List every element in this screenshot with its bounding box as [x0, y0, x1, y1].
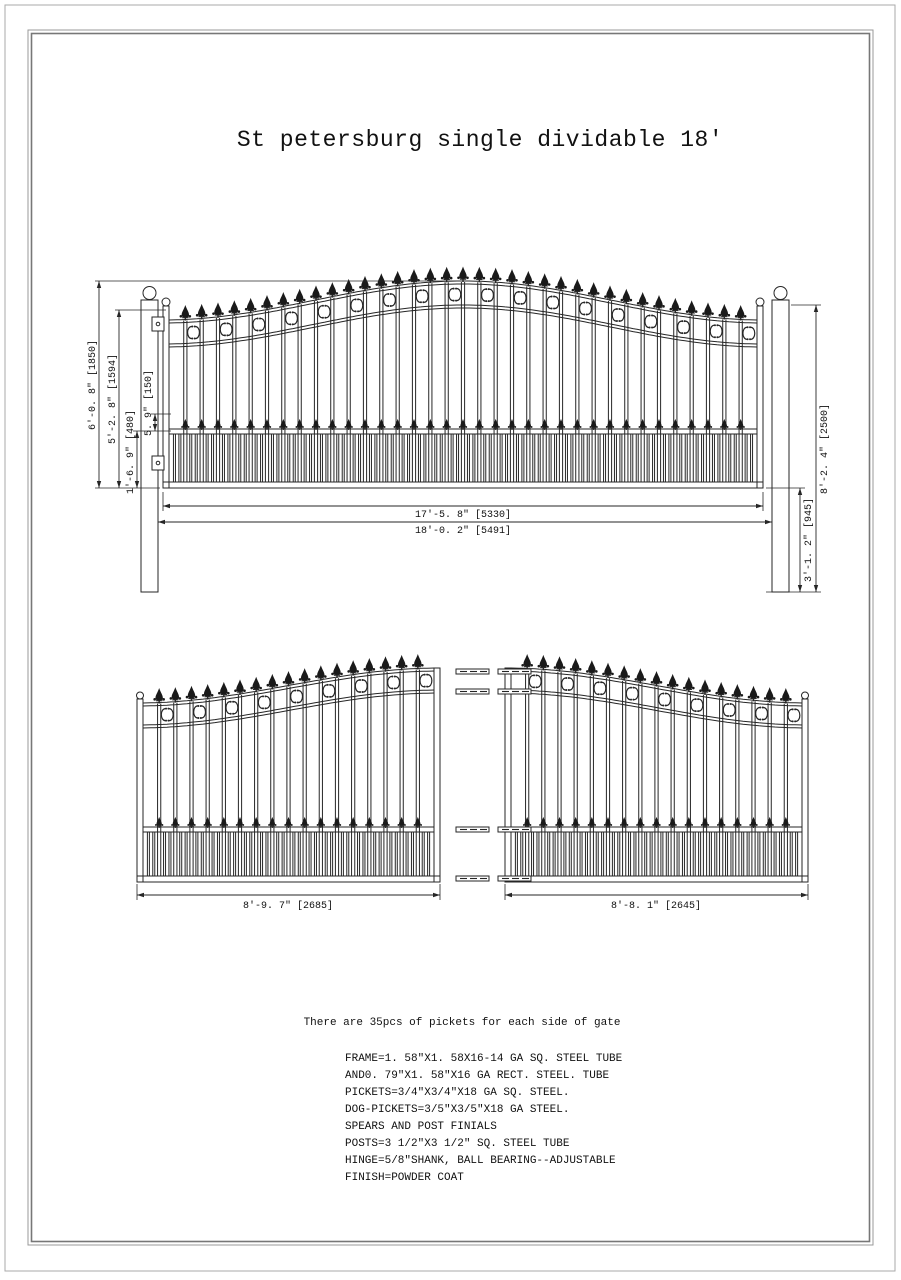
dim-label-mid-finial-height: 5. 9" [150] — [143, 370, 155, 436]
dim-label-overall-width: 18'-0. 2" [5491] — [415, 525, 511, 537]
dim-label-left-leaf-width: 8'-9. 7" [2685] — [243, 900, 333, 912]
dim-label-right-leaf-width: 8'-8. 1" [2645] — [611, 900, 701, 912]
spec-line-pickets: PICKETS=3/4"X3/4"X18 GA SQ. STEEL. — [345, 1087, 569, 1099]
dim-label-end-height: 5'-2. 8" [1594] — [107, 354, 119, 444]
spec-line-frame: FRAME=1. 58"X1. 58X16-14 GA SQ. STEEL TU… — [345, 1053, 623, 1065]
dim-label-post-below-gate: 3'-1. 2" [945] — [803, 498, 815, 582]
dim-label-leaf-width: 17'-5. 8" [5330] — [415, 509, 511, 521]
spec-line-spears: SPEARS AND POST FINIALS — [345, 1121, 497, 1133]
drawing-sheet: St petersburg single dividable 18' 6'-0.… — [0, 0, 901, 1280]
spec-line-posts: POSTS=3 1/2"X3 1/2" SQ. STEEL TUBE — [345, 1138, 570, 1150]
spec-line-and: AND0. 79"X1. 58"X16 GA RECT. STEEL. TUBE — [345, 1070, 609, 1082]
dim-label-post-height: 8'-2. 4" [2500] — [819, 404, 831, 494]
spec-line-dog-pickets: DOG-PICKETS=3/5"X3/5"X18 GA STEEL. — [345, 1104, 569, 1116]
sheet-svg: St petersburg single dividable 18' 6'-0.… — [0, 0, 901, 1280]
pickets-note: There are 35pcs of pickets for each side… — [304, 1017, 621, 1029]
spec-line-hinge: HINGE=5/8"SHANK, BALL BEARING--ADJUSTABL… — [345, 1155, 616, 1167]
page-title: St petersburg single dividable 18' — [237, 127, 723, 153]
dim-label-peak-height: 6'-0. 8" [1850] — [87, 340, 99, 430]
spec-line-finish: FINISH=POWDER COAT — [345, 1172, 464, 1184]
dim-label-bottom-section-height: 1'-6. 9" [480] — [125, 410, 137, 494]
